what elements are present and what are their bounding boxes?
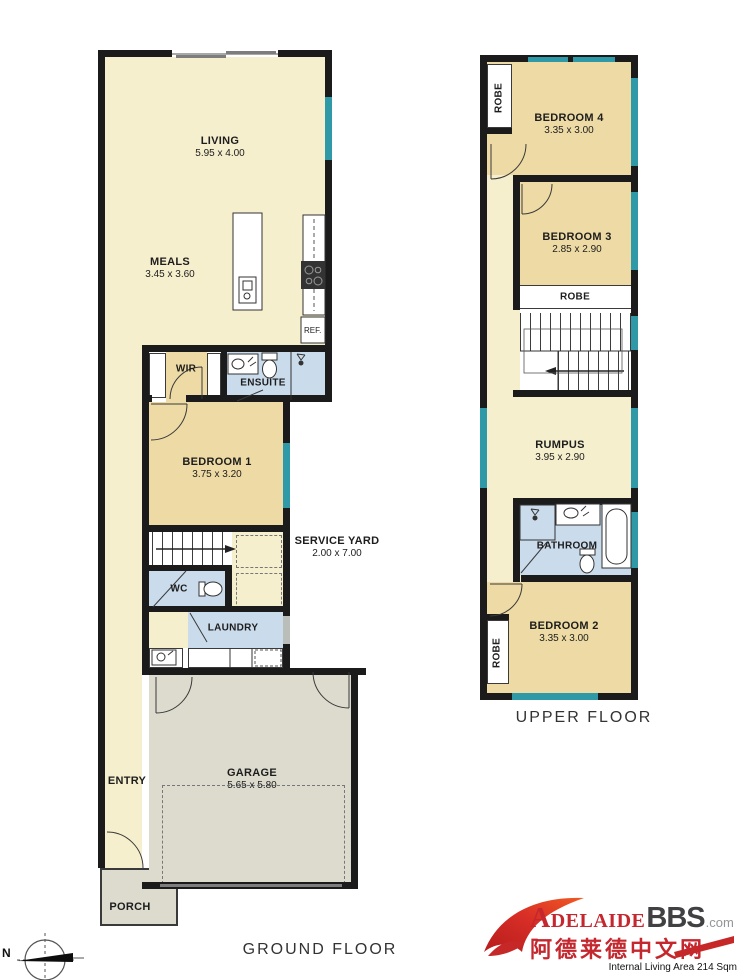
compass-north-label: N [2,946,11,960]
room-name: ENSUITE [240,378,285,389]
ground-floor-title: GROUND FLOOR [243,941,398,959]
room-label-bathroom: BATHROOM [537,541,598,552]
room-dims: 2.85 x 2.90 [542,244,611,255]
room-label-bedroom3: BEDROOM 3 2.85 x 2.90 [542,231,611,255]
kitchen-fixtures [233,213,325,343]
room-label-living: LIVING 5.95 x 4.00 [195,135,244,159]
room-label-ensuite: ENSUITE [240,378,285,389]
room-label-robe4: ROBE [494,83,505,113]
brand-chinese-name: 阿德莱德中文网 [530,932,705,964]
door-arc-bedroom1 [151,404,187,440]
brand-bbs: BBS [646,902,704,935]
room-dims: 3.35 x 3.00 [529,633,598,644]
room-label-robe3: ROBE [560,292,590,303]
door-arc-bedroom4 [491,144,526,179]
stair-arrow-upper [545,367,556,375]
room-label-bedroom1: BEDROOM 1 3.75 x 3.20 [182,456,251,480]
room-name: BATHROOM [537,541,598,552]
room-name: LIVING [195,135,244,147]
room-dims: 3.95 x 2.90 [535,452,584,463]
room-dims: 3.35 x 3.00 [534,125,603,136]
room-label-porch: PORCH [109,901,150,913]
brand-tld: .com [706,915,734,930]
room-label-rumpus: RUMPUS 3.95 x 2.90 [535,439,584,463]
compass [17,933,84,980]
brand-watermark: ADELAIDEBBS.com 阿德莱德中文网 Internal Living … [478,886,737,980]
room-name: BEDROOM 2 [529,620,598,632]
room-name: BEDROOM 3 [542,231,611,243]
stair-arrow-ground [225,545,236,553]
door-leaf-laundry [190,613,207,642]
door-arcs [107,144,552,868]
room-label-meals: MEALS 3.45 x 3.60 [145,256,194,280]
room-label-bedroom2: BEDROOM 2 3.35 x 3.00 [529,620,598,644]
room-label-bedroom4: BEDROOM 4 3.35 x 3.00 [534,112,603,136]
upper-floor-title: UPPER FLOOR [516,709,653,727]
room-name: MEALS [145,256,194,268]
door-arc-garage-right [313,672,349,708]
room-label-garage: GARAGE 5.65 x 5.80 [227,767,277,791]
room-name: ENTRY [108,775,146,787]
room-label-service-yard: SERVICE YARD 2.00 x 7.00 [295,535,380,559]
room-name: LAUNDRY [208,623,259,634]
room-name: RUMPUS [535,439,584,451]
ensuite-fixtures [228,352,305,400]
room-dims: 3.45 x 3.60 [145,269,194,280]
fixtures-overlay [0,0,737,980]
room-name: ROBE [492,638,503,668]
room-dims: 2.00 x 7.00 [295,548,380,559]
room-name: WC [170,584,187,595]
cooktop-icon [301,261,325,289]
room-dims: 5.65 x 5.80 [227,780,277,791]
room-name: ROBE [560,292,590,303]
toilet-icon [262,353,277,360]
room-label-laundry: LAUNDRY [208,623,259,634]
room-name: WIR [176,364,196,375]
room-label-wir: WIR [176,364,196,375]
door-arc-bedroom2 [490,584,522,616]
internal-area-note: Internal Living Area 214 Sqm [609,962,737,973]
floor-plan-canvas: LIVING 5.95 x 4.00 MEALS 3.45 x 3.60 WIR… [0,0,737,980]
washer-icon [255,650,281,666]
room-name: GARAGE [227,767,277,779]
room-name: SERVICE YARD [295,535,380,547]
brand-adelaide: ADELAIDE [530,903,645,935]
shower-icon [533,516,538,521]
room-name: BEDROOM 1 [182,456,251,468]
brand-text-row: ADELAIDEBBS.com [530,902,734,935]
room-label-wc: WC [170,584,187,595]
door-arc-entry [107,832,143,868]
door-arc-bedroom3 [522,184,552,214]
door-arc-garage-left [156,677,192,713]
room-dims: 3.75 x 3.20 [182,469,251,480]
room-name: ROBE [494,83,505,113]
shower-icon [299,361,304,366]
room-label-robe2: ROBE [492,638,503,668]
door-leaf-ensuite [237,390,263,401]
fridge-label: REF. [304,326,321,335]
room-label-entry: ENTRY [108,775,146,787]
laundry-trough [152,650,176,665]
room-name: PORCH [109,901,150,913]
room-name: BEDROOM 4 [534,112,603,124]
bathroom-fixtures [520,504,631,573]
room-dims: 5.95 x 4.00 [195,148,244,159]
